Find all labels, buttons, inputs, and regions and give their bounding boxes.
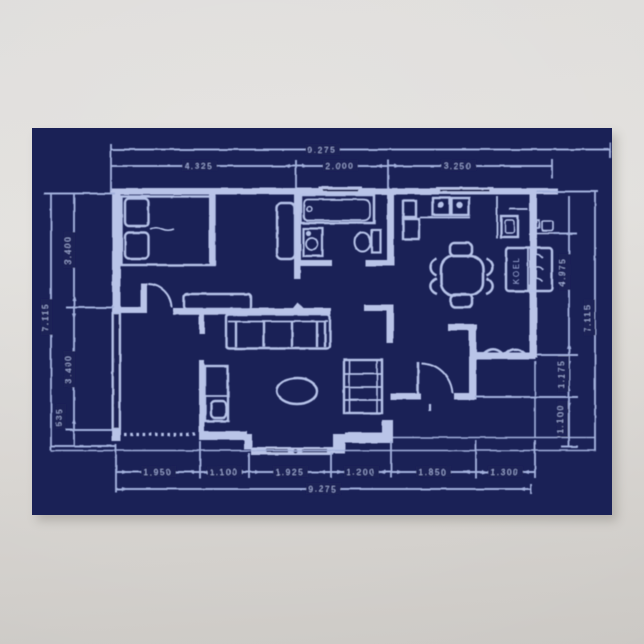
svg-text:3.400: 3.400 [64,354,73,383]
svg-text:3.250: 3.250 [443,162,472,171]
svg-text:KOEL: KOEL [512,256,521,285]
svg-text:535: 535 [55,408,64,427]
svg-text:1.300: 1.300 [490,468,519,477]
svg-text:9.275: 9.275 [307,146,336,155]
svg-text:4.325: 4.325 [184,162,213,171]
svg-text:1.850: 1.850 [418,468,447,477]
svg-text:1.100: 1.100 [209,468,238,477]
svg-text:1.200: 1.200 [346,468,375,477]
svg-text:7.115: 7.115 [583,304,592,332]
svg-text:1.175: 1.175 [557,359,566,388]
svg-text:1.925: 1.925 [275,468,304,477]
svg-text:3.400: 3.400 [64,235,73,264]
svg-text:9.275: 9.275 [308,485,337,494]
svg-text:1.100: 1.100 [556,404,565,433]
svg-text:1.950: 1.950 [143,468,172,477]
svg-text:7.115: 7.115 [41,303,50,331]
svg-text:2.000: 2.000 [325,162,354,171]
svg-text:4.975: 4.975 [558,257,567,286]
